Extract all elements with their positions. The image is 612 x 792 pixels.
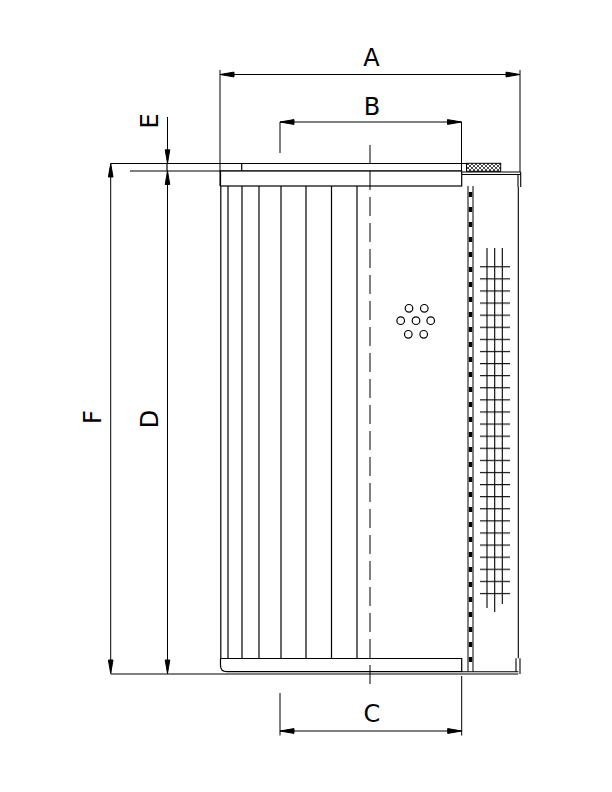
dimension-f: F [79, 164, 113, 674]
dimension-d: D [136, 171, 170, 674]
dim-label-a: A [363, 44, 380, 72]
mesh-screen [480, 248, 510, 612]
drawing-canvas: A B C F D E [0, 0, 612, 792]
gasket-crosshatch [467, 163, 501, 171]
drain-holes [397, 305, 435, 339]
dim-label-f: F [79, 410, 107, 424]
dim-label-e: E [136, 113, 164, 128]
dimension-b: B [280, 93, 462, 171]
dim-label-c: C [364, 700, 381, 728]
outer-shell [111, 172, 521, 674]
dim-label-d: D [136, 410, 164, 428]
dim-label-b: B [364, 93, 380, 121]
dimension-c: C [280, 676, 462, 736]
top-end-plate [111, 164, 467, 172]
top-end-cap [221, 171, 462, 186]
bottom-end-cap [221, 659, 462, 672]
core-tube [468, 186, 473, 672]
filter-element-drawing: A B C F D E [0, 0, 612, 792]
dimension-e: E [136, 113, 170, 163]
pleated-media [221, 186, 357, 659]
